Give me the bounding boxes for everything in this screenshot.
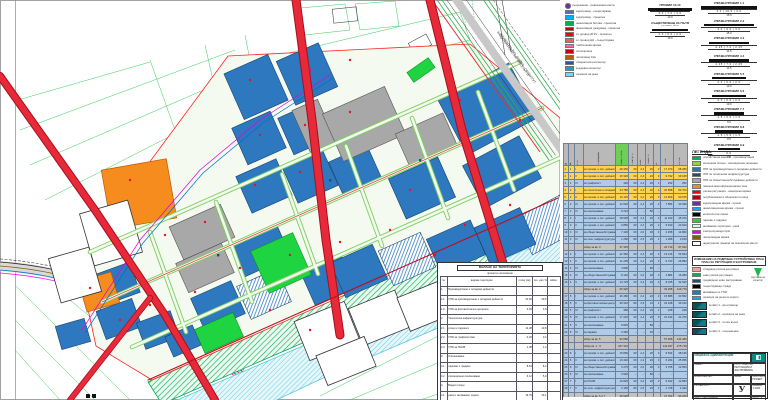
- zones-legend: ЛЕГЕНДА: устройствена зона Пп - производ…: [692, 150, 766, 247]
- legend-label: железопътна линия: [703, 213, 729, 216]
- profile-subtitle: ПРОФИЛ 11-11: [645, 25, 695, 28]
- street-profile: УЛИЧЕН ПРОФИЛ 6-62.0 | 6.0 | 2.010.0: [694, 90, 764, 106]
- table-cell: 20 868: [660, 187, 673, 194]
- title-block: ОБЩИНСКА АДМИНИСТРАЦИЯ ◧ ОБЕКТ: ПУП - ПЛ…: [692, 352, 768, 399]
- table-cell: за произв. и скл. дейности: [583, 215, 616, 222]
- table-cell: 53 664: [673, 251, 687, 258]
- table-cell: 20: [645, 222, 654, 229]
- table-cell: 60: [629, 314, 638, 321]
- table-cell: 30: [645, 229, 654, 236]
- table-cell: за произв. и скл. дейности: [583, 222, 616, 229]
- table-cell: 60: [629, 180, 638, 187]
- table-cell: 30 336: [673, 201, 687, 208]
- legend-swatch: [565, 15, 574, 20]
- legend-swatch: [565, 21, 574, 26]
- balance-grid: №видове територииплощ (ха)отн. дял %забе…: [440, 276, 561, 400]
- detail-thumbnail: [692, 319, 707, 327]
- profile-title: УЛИЧЕН ПРОФИЛ 5-5: [694, 73, 764, 76]
- table-cell: 6 492: [660, 378, 673, 385]
- table-cell: 2,4: [637, 314, 645, 321]
- table-cell: 26 480: [616, 293, 629, 300]
- table-cell: за произв. и скл. дейности: [583, 173, 616, 180]
- balance-row: 3.2.изолационно озеленяване6,125,9: [440, 372, 560, 382]
- street-profile: УЛИЧЕН ПРОФИЛ 7-71.5 | 6.0 | 1.59.0: [694, 108, 764, 124]
- table-cell: 38 136: [673, 350, 687, 357]
- legend-label: канализационна мрежа - проект: [703, 207, 745, 210]
- table-cell: V: [574, 322, 583, 329]
- table-cell: 93 680: [616, 336, 629, 343]
- table-cell: за фотоволтаична централа: [583, 300, 616, 307]
- table-cell: за произв. и скл. дейности: [583, 201, 616, 208]
- table-cell: 68 280: [673, 166, 687, 173]
- table-cell: 12 640: [616, 201, 629, 208]
- table-cell: 2,4: [637, 222, 645, 229]
- legend-swatch: [692, 224, 701, 229]
- table-cell: [645, 343, 654, 350]
- legend-swatch: [692, 273, 701, 278]
- table-cell: 30: [645, 364, 654, 371]
- object-label: ОБЕКТ:: [693, 363, 733, 375]
- table-cell: 30: [645, 378, 654, 385]
- table-cell: за ПСОВ: [583, 378, 616, 385]
- legend-item: дъждовен колектор: [565, 66, 641, 71]
- table-cell: –: [660, 322, 673, 329]
- table-cell: 60: [629, 187, 638, 194]
- table-cell: 2,5: [637, 236, 645, 243]
- table-cell: за произв. и скл. дейности: [583, 166, 616, 173]
- table-cell: [645, 393, 654, 398]
- table-row: 195IIIза трафопост380602,4201228228: [564, 307, 688, 314]
- street-profile: УЛИЧЕН ПРОФИЛ 2-23.0 | 9.0 | 3.015.0: [694, 20, 764, 36]
- detail-label: детайл 4 - съоръжение: [709, 330, 739, 333]
- legend-label: кадастрални граници на поземлени имоти: [703, 242, 758, 245]
- column-header: УПИ: [574, 144, 583, 166]
- street-profile: ПРОФИЛ 10-103.0 | 7.0 | 3.013.0: [645, 4, 695, 20]
- signature: У: [733, 384, 751, 396]
- table-cell: 60: [629, 251, 638, 258]
- detail-thumbnail: [692, 311, 707, 319]
- legend-label: отводнителен колектор: [576, 61, 606, 64]
- table-cell: 45 372: [673, 215, 687, 222]
- zones-legend-title: ЛЕГЕНДА:: [692, 150, 766, 155]
- legend-label: отпадаща улична регулация: [703, 268, 740, 271]
- table-cell: 28 450: [616, 166, 629, 173]
- legend-item: ел. провод НН - съществуващ: [565, 38, 641, 43]
- table-cell: общо за кв. 4: [583, 286, 616, 293]
- table-cell: 17 240: [616, 314, 629, 321]
- table-cell: 13 725: [616, 279, 629, 286]
- table-cell: 13 416: [660, 251, 673, 258]
- table-cell: 9 792: [660, 173, 673, 180]
- table-cell: 2,4: [637, 215, 645, 222]
- balance-subtitle: проектно положение: [440, 272, 561, 275]
- legend-swatch: [692, 290, 701, 295]
- table-cell: –: [629, 322, 638, 329]
- legend-label: водопровод - проектен: [576, 16, 606, 19]
- table-cell: 49 525: [616, 393, 629, 398]
- table-cell: 11 343: [660, 215, 673, 222]
- legend-swatch: [565, 32, 574, 37]
- table-cell: 144 466: [673, 336, 687, 343]
- legend-swatch: [565, 72, 574, 77]
- legend-swatch: [565, 44, 574, 49]
- table-cell: 60: [629, 201, 638, 208]
- table-cell: [637, 336, 645, 343]
- table-cell: 10 820: [616, 378, 629, 385]
- table-cell: за озеленяване: [583, 371, 616, 378]
- table-cell: 6 264: [660, 357, 673, 364]
- table-cell: –: [673, 329, 687, 336]
- table-row: 103IIIза общественообслужване7 430602,03…: [564, 229, 688, 236]
- street-profile: УЛИЧЕН ПРОФИЛ 1-13.0 | 10.5 | 3.016.5: [694, 2, 764, 18]
- table-cell: за произв. и скл. дейности: [583, 314, 616, 321]
- table-row: 144IIIза озеленяване4 890––80–––: [564, 265, 688, 272]
- legend-swatch: [565, 10, 574, 15]
- table-cell: 20: [645, 236, 654, 243]
- table-row: 236Iза произв. и скл. дейности15 890602,…: [564, 350, 688, 357]
- table-cell: общо за кв. 6 и 7: [583, 393, 616, 398]
- table-cell: 60: [629, 173, 638, 180]
- table-cell: 12 550: [673, 364, 687, 371]
- table-cell: 10: [645, 300, 654, 307]
- legend-swatch: [692, 241, 701, 246]
- table-cell: 8 235: [660, 279, 673, 286]
- table-cell: 20: [645, 329, 654, 336]
- legend-item: слаботокова мрежа: [565, 44, 641, 49]
- legend-label: газопроводна мрежа: [703, 236, 730, 239]
- profile-title: УЛИЧЕН ПРОФИЛ 6-6: [694, 90, 764, 93]
- table-row: 277Iза ПСОВ10 820602,03026 49212 984: [564, 378, 688, 385]
- table-cell: 34 780: [616, 187, 629, 194]
- table-cell: 3 765: [660, 364, 673, 371]
- profile-title: УЛИЧЕН ПРОФИЛ 1-1: [694, 2, 764, 5]
- legend-item: нова улична регулация: [692, 273, 746, 278]
- table-row: 225VIза паркинг3 450––20–––: [564, 329, 688, 336]
- legend-item: смесена многофункционална зона: [692, 184, 766, 189]
- table-cell: 60: [629, 166, 638, 173]
- table-cell: за произв. и скл. дейности: [583, 194, 616, 201]
- balance-header: забел.: [547, 276, 560, 286]
- table-cell: за озеленяване: [583, 208, 616, 215]
- legend-label: съоръжение - ревизионна шахта: [572, 4, 615, 7]
- table-cell: [629, 244, 638, 251]
- legend-item: УПИ за общественообслужващи дейности: [692, 178, 766, 183]
- column-header: ЗП м²: [660, 144, 673, 166]
- legend-swatch: [692, 296, 701, 301]
- table-cell: II: [574, 258, 583, 265]
- table-cell: за озеленяване: [583, 322, 616, 329]
- drawing-label: [733, 396, 751, 400]
- balance-header: №: [440, 276, 447, 286]
- table-cell: 475 718: [673, 343, 687, 350]
- table-cell: 30: [645, 272, 654, 279]
- table-cell: IV: [574, 371, 583, 378]
- legend-item: отпадаща улична регулация: [692, 267, 746, 272]
- table-cell: 31 448: [660, 300, 673, 307]
- table-cell: за трафопост: [583, 180, 616, 187]
- table-cell: 60: [629, 279, 638, 286]
- table-cell: III: [574, 364, 583, 371]
- table-cell: 12 669: [660, 194, 673, 201]
- table-cell: 9 534: [660, 350, 673, 357]
- table-cell: [574, 393, 583, 398]
- outfall-icon: [754, 268, 762, 277]
- table-cell: 3 450: [616, 329, 629, 336]
- table-cell: 20: [645, 385, 654, 392]
- legend-item: канализация дъждовна - проектна: [565, 27, 641, 32]
- table-cell: 39 310: [616, 300, 629, 307]
- legend-label: канализация дъждовна - проектна: [576, 27, 621, 30]
- table-cell: 2,4: [637, 180, 645, 187]
- client-label: ВЪЗЛОЖИТЕЛ:: [693, 375, 733, 384]
- table-cell: 16 320: [616, 173, 629, 180]
- table-row: 134IIза произв. и скл. дейности11 205602…: [564, 258, 688, 265]
- table-row: 31IIIза трафопост420602,4201252252: [564, 180, 688, 187]
- scale-cell: МАЩАБ: 1:2000: [751, 384, 766, 396]
- legend-swatch: [692, 178, 701, 183]
- table-cell: 20: [645, 293, 654, 300]
- balance-table: БАЛАНС НА ТЕРИТОРИЯТА проектно положение…: [437, 262, 563, 400]
- profile-total-width: 10.0: [708, 84, 750, 88]
- table-cell: 20: [645, 279, 654, 286]
- legend-swatch: [692, 195, 701, 200]
- profile-title: УЛИЧЕН ПРОФИЛ 9-9: [694, 144, 764, 147]
- table-cell: II: [574, 357, 583, 364]
- table-cell: 2,4: [637, 307, 645, 314]
- table-cell: 20: [645, 307, 654, 314]
- table-cell: [637, 343, 645, 350]
- table-cell: I: [574, 378, 583, 385]
- legend-label: УПИ за техническа инфраструктура: [703, 173, 750, 176]
- table-cell: 50 676: [673, 194, 687, 201]
- table-cell: III: [574, 307, 583, 314]
- table-cell: –: [629, 371, 638, 378]
- legend-swatch: [565, 66, 574, 71]
- legend-item: газопроводна мрежа: [692, 235, 766, 240]
- legend-label: дъждовен колектор: [576, 67, 601, 70]
- legend-swatch: [692, 235, 701, 240]
- table-cell: II: [574, 173, 583, 180]
- table-cell: 20: [645, 258, 654, 265]
- utilities-legend: съоръжение - ревизионна шахтаводопровод …: [565, 3, 641, 78]
- legend-label: съществуващи сгради: [703, 285, 732, 288]
- table-cell: [629, 336, 638, 343]
- table-cell: –: [660, 208, 673, 215]
- profile-title: УЛИЧЕН ПРОФИЛ 2-2: [694, 20, 764, 23]
- legend-item: съоръжение - ревизионна шахта: [565, 3, 641, 9]
- table-cell: 20: [645, 194, 654, 201]
- table-cell: за общественообслужване: [583, 272, 616, 279]
- table-row: 266IVза озеленяване3 940––80–––: [564, 371, 688, 378]
- table-cell: 80: [629, 385, 638, 392]
- legend-label: заливаеми територии - река: [703, 225, 740, 228]
- legend-label: паркове и градини: [703, 219, 727, 222]
- legend-label: слаботокова мрежа: [576, 44, 602, 47]
- table-cell: общо за кв. 3: [583, 244, 616, 251]
- table-cell: 93 046: [673, 393, 687, 398]
- legend-swatch: [565, 3, 571, 9]
- table-cell: [574, 244, 583, 251]
- table-cell: 20: [645, 166, 654, 173]
- balance-row: 3.1.паркове и градини8,648,4: [440, 363, 560, 373]
- table-cell: [574, 343, 583, 350]
- legend-swatch: [692, 201, 701, 206]
- profile-total-width: 8.5: [708, 137, 750, 141]
- table-cell: IV: [574, 208, 583, 215]
- legend-item: железопътна линия: [692, 212, 766, 217]
- legend-item: УПИ за техническа инфраструктура: [692, 173, 766, 178]
- column-header: К инт.: [637, 144, 645, 166]
- table-cell: 21 115: [616, 194, 629, 201]
- table-cell: II: [574, 385, 583, 392]
- table-row: 287IIза техн. инфраструктура2 160802,520…: [564, 385, 688, 392]
- table-row: 11Iза произв. и скл. дейности28 450602,4…: [564, 166, 688, 173]
- legend-item: улична регулация - новопроектирана: [692, 190, 766, 195]
- table-cell: 83 472: [673, 187, 687, 194]
- balance-row: 4.Водни площи: [440, 382, 560, 392]
- table-cell: 2,0: [637, 229, 645, 236]
- table-cell: 15 888: [660, 293, 673, 300]
- table-cell: I: [574, 251, 583, 258]
- table-cell: 25 056: [673, 357, 687, 364]
- table-cell: 80: [629, 236, 638, 243]
- table-cell: за общественообслужване: [583, 229, 616, 236]
- legend-swatch: [692, 173, 701, 178]
- detail-thumbnail-row: детайл 4 - съоръжение: [692, 328, 766, 336]
- balance-row: 2.2.УПИ за трафопостове0,460,4: [440, 334, 560, 344]
- table-cell: 2,4: [637, 293, 645, 300]
- table-cell: за общественообслужване: [583, 364, 616, 371]
- legend-item: кадастрални граници на поземлени имоти: [692, 241, 766, 246]
- profile-title: УЛИЧЕН ПРОФИЛ 8-8: [694, 126, 764, 129]
- table-cell: 60: [629, 215, 638, 222]
- plan-sheet: ЗАЩИТЕН ПОЯС НА АВТОПЪТ И ЖЕЛЕЗОПЪТНА ЛИ…: [0, 0, 768, 400]
- balance-row: 1.Производствени и складови дейности: [440, 286, 560, 296]
- legend-swatch: [565, 38, 574, 43]
- table-cell: [574, 286, 583, 293]
- table-cell: 80: [645, 208, 654, 215]
- table-cell: 2,4: [637, 166, 645, 173]
- amendment-title-box: ИЗМЕНЕНИЕ НА ПОДРОБЕН УСТРОЙСТВЕН ПЛАН П…: [692, 256, 766, 266]
- table-cell: I: [574, 215, 583, 222]
- table-cell: 32 940: [673, 279, 687, 286]
- designer-label: ПРОЕКТАНТ:: [693, 384, 733, 396]
- table-cell: –: [629, 208, 638, 215]
- table-cell: 15 890: [616, 350, 629, 357]
- legend-label: електропроводи СрН: [703, 230, 730, 233]
- detail-thumbnail-row: детайл 3 - пътен възел: [692, 319, 766, 327]
- table-cell: –: [660, 329, 673, 336]
- table-cell: 60: [629, 229, 638, 236]
- table-row: 154IVза общественообслужване8 140602,030…: [564, 272, 688, 279]
- legend-label: корекция на река: [576, 73, 598, 76]
- legend-label: топлопровод: [576, 50, 593, 53]
- table-cell: [629, 393, 638, 398]
- table-cell: 60: [629, 194, 638, 201]
- table-cell: 228: [660, 307, 673, 314]
- column-header: отреждане: [583, 144, 616, 166]
- table-cell: 4 320: [673, 385, 687, 392]
- legend-item: топлопровод: [565, 49, 641, 54]
- table-cell: I: [574, 187, 583, 194]
- table-cell: II: [574, 194, 583, 201]
- table-cell: [629, 343, 638, 350]
- table-cell: 2,4: [637, 173, 645, 180]
- table-row: общо кв. 1 - 5247 310144 937475 718: [564, 343, 688, 350]
- legend-label: улична регулация - новопроектирана: [703, 190, 751, 193]
- table-cell: 2,4: [637, 279, 645, 286]
- column-header: РЗП м²: [673, 144, 687, 166]
- table-cell: 80: [645, 322, 654, 329]
- detail-thumbnail-row: детайл 2 - корекция на река: [692, 311, 766, 319]
- table-row: 164Vза произв. и скл. дейности13 725602,…: [564, 279, 688, 286]
- legend-item: УПИ за производствени и складови дейност…: [692, 167, 766, 172]
- legend-label: ел. провод НН - съществуващ: [576, 39, 615, 42]
- table-cell: 2,0: [637, 364, 645, 371]
- profile-title: УЛИЧЕН ПРОФИЛ 7-7: [694, 108, 764, 111]
- table-cell: 57 908: [660, 336, 673, 343]
- detail-thumbnail-row: детайл 1 - кръстовище: [692, 302, 766, 310]
- profile-total-width: 10.0: [655, 36, 685, 40]
- table-cell: 87 022: [673, 244, 687, 251]
- legend-label: УПИ за общественообслужващи дейности: [703, 179, 758, 182]
- column-header: П застр. %: [629, 144, 638, 166]
- table-cell: 10 344: [660, 314, 673, 321]
- street-profiles-secondary: ПРОФИЛ 10-103.0 | 7.0 | 3.013.0СЪЩЕСТВУВ…: [645, 4, 695, 42]
- table-cell: II: [574, 222, 583, 229]
- table-cell: –: [629, 265, 638, 272]
- table-cell: I: [574, 166, 583, 173]
- table-cell: 23 640: [673, 222, 687, 229]
- phase-value: ОКОНЧАТЕЛЕН ПРОЕКТ: [751, 375, 766, 384]
- street-profile: УЛИЧЕН ПРОФИЛ 4-42.25 | 7.0 | 2.2511.5: [694, 55, 764, 71]
- table-cell: 420: [616, 180, 629, 187]
- table-row: 52IIза произв. и скл. дейности21 115602,…: [564, 194, 688, 201]
- table-cell: 26 892: [673, 258, 687, 265]
- table-cell: –: [673, 371, 687, 378]
- object-value: ПУП - ПЛАН ЗА РЕГУЛАЦИЯ И ЗАСТРОЯВАНЕ: [733, 363, 766, 375]
- profile-total-width: 11.5: [708, 49, 750, 53]
- legend-swatch: [692, 156, 701, 161]
- table-cell: –: [637, 322, 645, 329]
- table-row: 205IVза произв. и скл. дейности17 240602…: [564, 314, 688, 321]
- legend-label: водопровод - съществуващ: [576, 10, 612, 13]
- table-cell: 2,4: [637, 251, 645, 258]
- table-cell: II: [574, 300, 583, 307]
- detail-label: детайл 1 - кръстовище: [709, 304, 739, 307]
- legend-swatch: [692, 161, 701, 166]
- detail-thumbnail: [692, 328, 707, 336]
- table-cell: 27 783: [660, 393, 673, 398]
- table-row: 62IIIза произв. и скл. дейности12 640602…: [564, 201, 688, 208]
- legend-label: газопровод СрН: [576, 56, 597, 59]
- table-cell: 2,4: [637, 258, 645, 265]
- table-cell: 2,4: [637, 194, 645, 201]
- table-cell: 60: [629, 364, 638, 371]
- legend-item: устройствена зона Пп - производствена: [692, 156, 766, 161]
- table-cell: 80: [645, 371, 654, 378]
- table-cell: 3 150: [673, 236, 687, 243]
- table-cell: 60: [629, 350, 638, 357]
- balance-row: 2.1.улици и паркинги14,2813,8: [440, 324, 560, 334]
- legend-swatch: [565, 61, 574, 66]
- legend-item: отводнителен колектор: [565, 61, 641, 66]
- legend-label: корекция на речното корито: [703, 296, 739, 299]
- column-header: П озел. %: [645, 144, 654, 166]
- table-cell: I: [574, 350, 583, 357]
- street-profile: УЛИЧЕН ПРОФИЛ 3-32.25 | 7.0 | 2.2511.5: [694, 37, 764, 53]
- table-cell: за произв. и скл. дейности: [583, 350, 616, 357]
